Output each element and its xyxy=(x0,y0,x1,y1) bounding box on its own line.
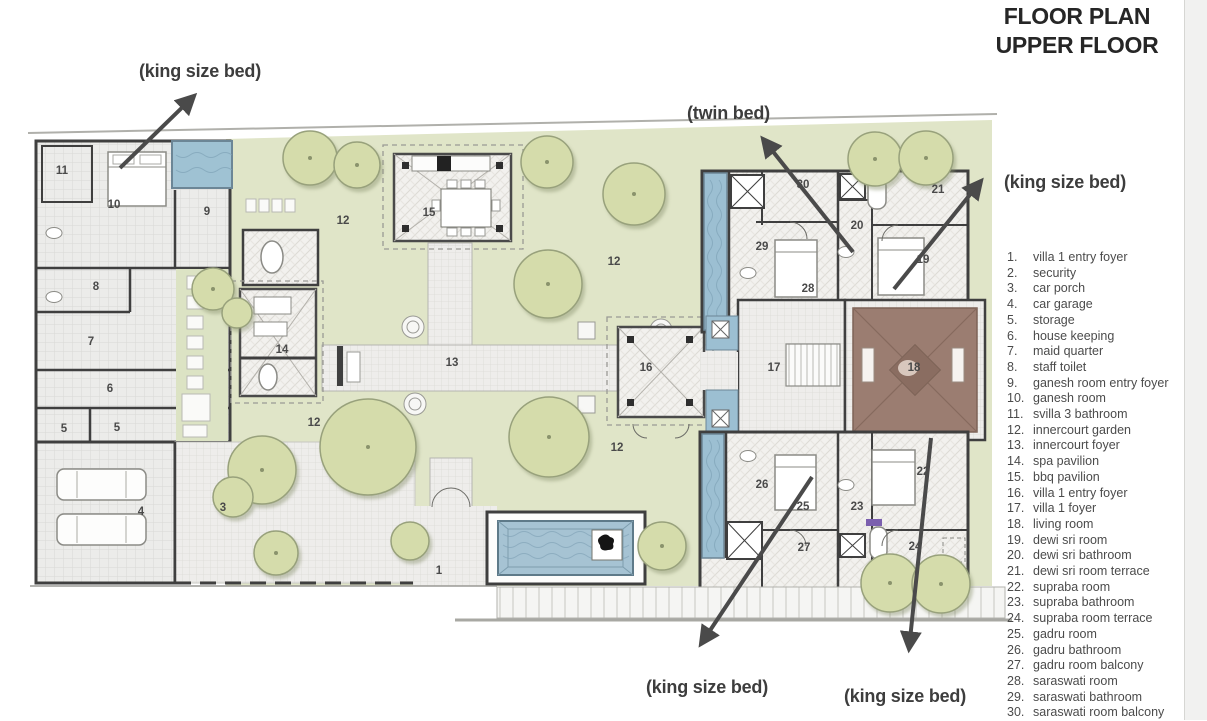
legend-item-20: 20.dewi sri bathroom xyxy=(1007,548,1205,564)
room-number-5: 5 xyxy=(114,422,120,434)
room-number-7: 7 xyxy=(88,336,94,348)
room-number-12: 12 xyxy=(608,256,621,268)
floor-plan-page: 1345567891011121212121314151617181920212… xyxy=(0,0,1207,720)
legend-item-19: 19.dewi sri room xyxy=(1007,533,1205,549)
legend-item-28: 28.saraswati room xyxy=(1007,674,1205,690)
room-number-4: 4 xyxy=(138,506,144,518)
lap-pool-north xyxy=(704,173,727,330)
villa1-wing xyxy=(700,171,985,592)
legend-item-13: 13.innercourt foyer xyxy=(1007,438,1205,454)
legend-item-17: 17.villa 1 foyer xyxy=(1007,501,1205,517)
room-number-3: 3 xyxy=(220,502,226,514)
legend-item-25: 25.gadru room xyxy=(1007,627,1205,643)
room-number-17: 17 xyxy=(768,362,781,374)
legend-item-30: 30.saraswati room balcony xyxy=(1007,705,1205,721)
room-number-12: 12 xyxy=(337,215,350,227)
room-number-6: 6 xyxy=(107,383,113,395)
bed xyxy=(108,152,166,206)
legend-item-23: 23.supraba bathroom xyxy=(1007,595,1205,611)
bed-annotation: (king size bed) xyxy=(139,61,261,82)
legend-item-14: 14.spa pavilion xyxy=(1007,454,1205,470)
legend-item-26: 26.gadru bathroom xyxy=(1007,643,1205,659)
title-line-1: FLOOR PLAN xyxy=(988,2,1166,31)
room-number-14: 14 xyxy=(276,344,289,356)
legend-item-11: 11.svilla 3 bathroom xyxy=(1007,407,1205,423)
room-number-29: 29 xyxy=(756,241,769,253)
elevator-shaft xyxy=(731,175,764,208)
room-number-11: 11 xyxy=(56,165,68,177)
room-number-26: 26 xyxy=(756,479,769,491)
room-number-23: 23 xyxy=(851,501,864,513)
bed xyxy=(878,238,924,295)
room-number-27: 27 xyxy=(798,542,811,554)
right-edge-band xyxy=(1184,0,1207,720)
legend-item-4: 4.car garage xyxy=(1007,297,1205,313)
legend-item-3: 3.car porch xyxy=(1007,281,1205,297)
legend-item-2: 2.security xyxy=(1007,266,1205,282)
plunge-pool xyxy=(172,141,232,188)
legend-item-24: 24.supraba room terrace xyxy=(1007,611,1205,627)
legend-item-18: 18.living room xyxy=(1007,517,1205,533)
legend-item-12: 12.innercourt garden xyxy=(1007,423,1205,439)
bed xyxy=(775,455,816,510)
bed-annotation: (king size bed) xyxy=(844,686,966,707)
lap-pool-south xyxy=(702,434,724,558)
room-number-12: 12 xyxy=(308,417,321,429)
legend-item-27: 27.gadru room balcony xyxy=(1007,658,1205,674)
room-number-30: 30 xyxy=(797,179,810,191)
title-block: FLOOR PLAN UPPER FLOOR xyxy=(988,2,1166,60)
legend-item-8: 8.staff toilet xyxy=(1007,360,1205,376)
legend-item-6: 6.house keeping xyxy=(1007,329,1205,345)
legend-panel: 1.villa 1 entry foyer2.security3.car por… xyxy=(1007,250,1205,721)
room-number-28: 28 xyxy=(802,283,815,295)
legend-item-5: 5.storage xyxy=(1007,313,1205,329)
room-number-15: 15 xyxy=(423,207,436,219)
room-number-21: 21 xyxy=(932,184,945,196)
car xyxy=(57,469,146,500)
room-number-20: 20 xyxy=(851,220,864,232)
room-number-12: 12 xyxy=(611,442,624,454)
bed-annotation: (king size bed) xyxy=(1004,172,1126,193)
room-number-13: 13 xyxy=(446,357,459,369)
legend-item-7: 7.maid quarter xyxy=(1007,344,1205,360)
room-number-8: 8 xyxy=(93,281,99,293)
bed xyxy=(872,450,915,505)
title-line-2: UPPER FLOOR xyxy=(988,31,1166,60)
legend-item-21: 21.dewi sri room terrace xyxy=(1007,564,1205,580)
room-number-24: 24 xyxy=(909,541,922,553)
bed-annotation: (king size bed) xyxy=(646,677,768,698)
room-number-10: 10 xyxy=(108,199,121,211)
legend-item-15: 15.bbq pavilion xyxy=(1007,470,1205,486)
legend-item-1: 1.villa 1 entry foyer xyxy=(1007,250,1205,266)
elevator-shaft xyxy=(727,522,762,559)
legend-item-16: 16.villa 1 entry foyer xyxy=(1007,486,1205,502)
room-number-19: 19 xyxy=(917,254,930,266)
room-number-5: 5 xyxy=(61,423,67,435)
room-number-1: 1 xyxy=(436,565,442,577)
legend-item-10: 10.ganesh room xyxy=(1007,391,1205,407)
bed-annotation: (twin bed) xyxy=(687,103,770,124)
swimming-pool xyxy=(487,512,645,584)
bbq-pavilion xyxy=(383,145,523,249)
legend-item-9: 9.ganesh room entry foyer xyxy=(1007,376,1205,392)
room-number-22: 22 xyxy=(917,466,930,478)
room-number-9: 9 xyxy=(204,206,210,218)
shaft xyxy=(840,534,865,557)
legend-item-29: 29.saraswati bathroom xyxy=(1007,690,1205,706)
car xyxy=(57,514,146,545)
legend-item-22: 22.supraba room xyxy=(1007,580,1205,596)
room-number-16: 16 xyxy=(640,362,653,374)
room-number-25: 25 xyxy=(797,501,810,513)
room-number-18: 18 xyxy=(908,362,921,374)
staircase xyxy=(786,344,840,386)
purple-marker xyxy=(866,519,882,526)
